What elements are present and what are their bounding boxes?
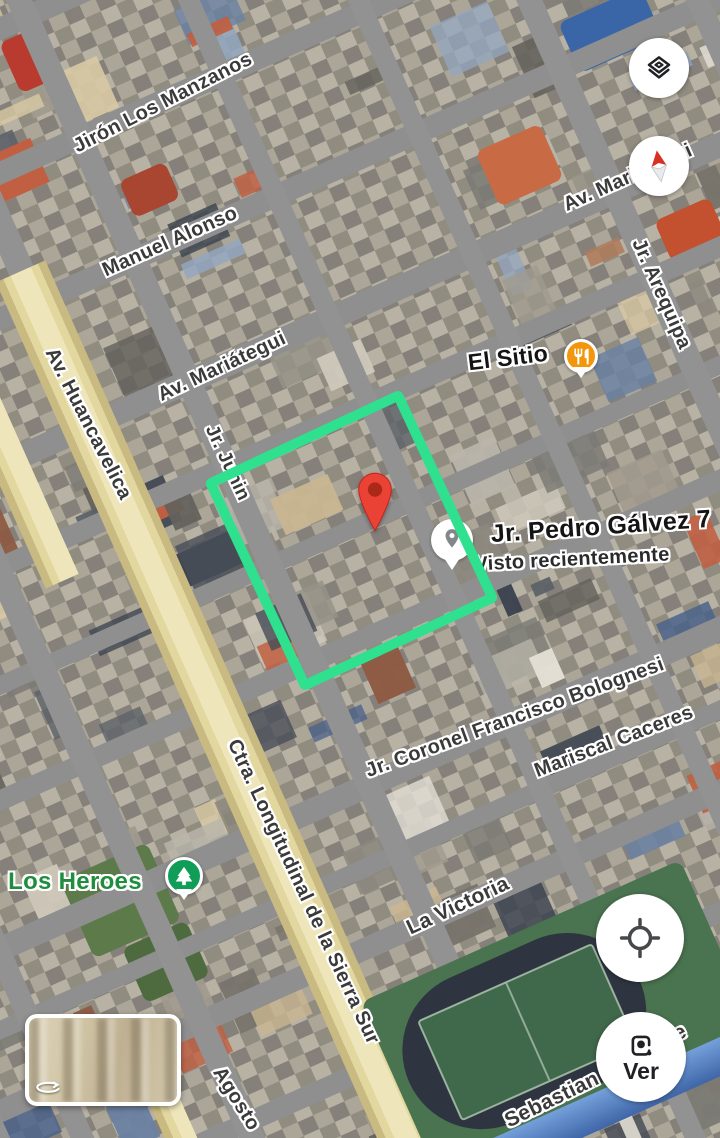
look-around-icon (35, 1080, 63, 1098)
crosshair-icon (619, 917, 661, 959)
destination-pin[interactable] (352, 471, 398, 533)
streetview-thumbnail[interactable] (25, 1014, 181, 1106)
restaurant-icon (572, 347, 591, 366)
layers-icon (644, 53, 674, 83)
map-accent (119, 161, 181, 218)
compass-button[interactable] (629, 136, 689, 196)
map-block (584, 237, 625, 267)
tree-icon (173, 865, 195, 887)
restaurant-pin[interactable] (564, 339, 598, 373)
live-view-button[interactable]: Ver (596, 1012, 686, 1102)
camera-icon (625, 1030, 657, 1060)
park-label-los-heroes[interactable]: Los Heroes (8, 868, 142, 896)
park-pin[interactable] (165, 857, 203, 895)
map-viewport[interactable]: Jirón Los Manzanos Manuel Alonso Av. Mar… (0, 0, 720, 1138)
map-block (688, 280, 715, 317)
my-location-button[interactable] (596, 894, 684, 982)
ver-button-label: Ver (623, 1058, 659, 1085)
layers-button[interactable] (629, 38, 689, 98)
compass-icon (639, 146, 680, 187)
map-block (429, 1, 509, 77)
